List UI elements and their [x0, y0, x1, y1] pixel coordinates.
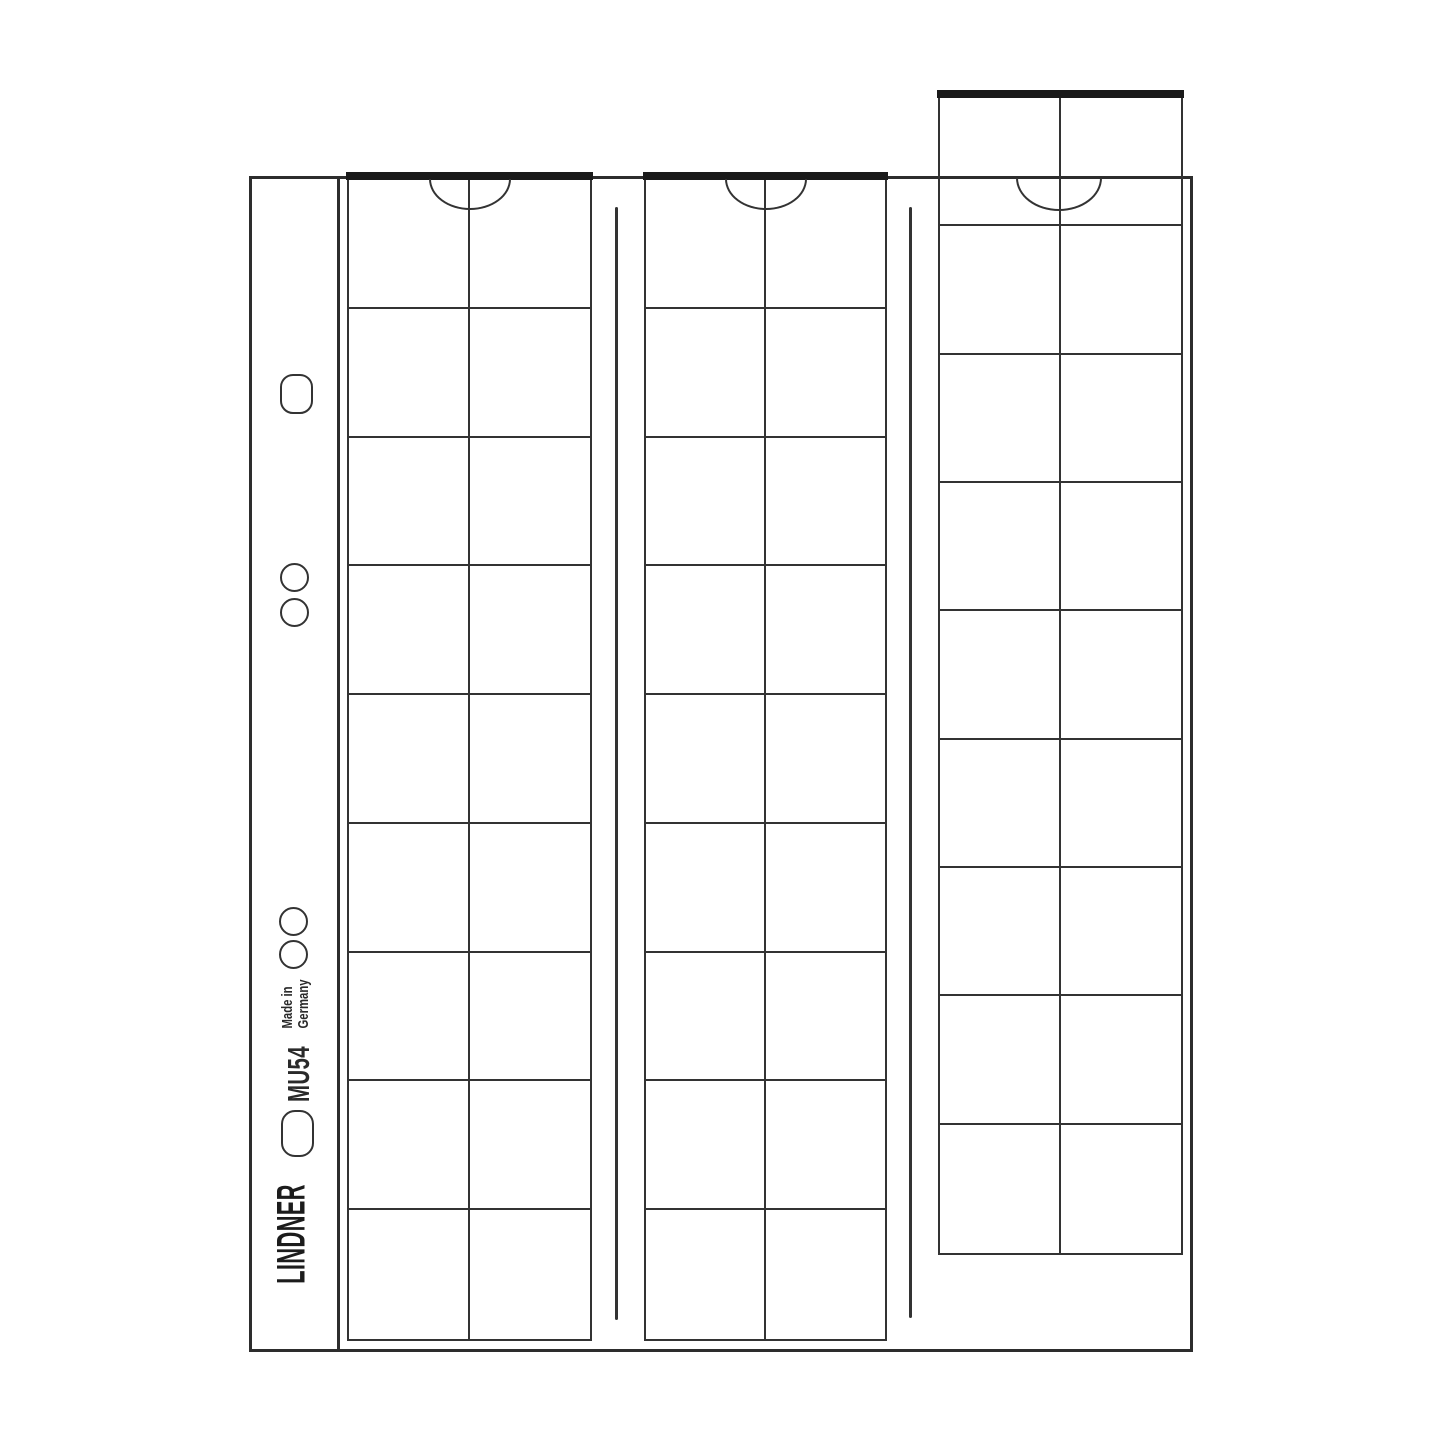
- coin-pocket: [349, 695, 470, 824]
- coin-strip: [938, 90, 1183, 1255]
- origin-text: Made in Germany: [280, 979, 312, 1028]
- coin-pocket: [940, 355, 1061, 483]
- coin-pocket: [766, 438, 886, 567]
- punch-hole-circle: [279, 907, 308, 936]
- coin-pocket: [766, 1081, 886, 1210]
- coin-pocket: [940, 226, 1061, 354]
- coin-pocket: [1061, 868, 1182, 996]
- coin-pocket: [470, 824, 591, 953]
- coin-pocket: [766, 695, 886, 824]
- punch-hole-circle: [280, 563, 309, 592]
- coin-pocket: [940, 98, 1061, 226]
- coin-pocket: [470, 1210, 591, 1339]
- coin-pocket: [646, 824, 766, 953]
- coin-pocket: [349, 824, 470, 953]
- coin-pocket: [940, 611, 1061, 739]
- coin-pocket: [349, 953, 470, 1082]
- pocket-grid: [644, 180, 887, 1341]
- coin-strip: [347, 172, 592, 1341]
- punch-hole-circle: [279, 940, 308, 969]
- coin-pocket: [646, 695, 766, 824]
- coin-pocket: [646, 566, 766, 695]
- coin-pocket: [349, 438, 470, 567]
- coin-pocket: [470, 953, 591, 1082]
- origin-line-1: Made in: [280, 979, 296, 1028]
- coin-strip: [644, 172, 887, 1341]
- coin-pocket: [349, 566, 470, 695]
- coin-pocket: [646, 1210, 766, 1339]
- coin-pocket: [470, 566, 591, 695]
- coin-pocket: [470, 1081, 591, 1210]
- product-illustration: LINDNER MU54 Made in Germany: [0, 0, 1445, 1445]
- coin-pocket: [1061, 996, 1182, 1124]
- coin-pocket: [470, 695, 591, 824]
- coin-pocket: [940, 1125, 1061, 1253]
- coin-pocket: [940, 740, 1061, 868]
- coin-pocket: [1061, 355, 1182, 483]
- pocket-grid: [347, 180, 592, 1341]
- coin-pocket: [1061, 98, 1182, 226]
- model-number-text: MU54: [281, 1046, 317, 1102]
- coin-pocket: [766, 953, 886, 1082]
- coin-pocket: [470, 438, 591, 567]
- coin-pocket: [1061, 740, 1182, 868]
- coin-pocket: [349, 309, 470, 438]
- coin-pocket: [470, 309, 591, 438]
- coin-pocket: [1061, 1125, 1182, 1253]
- coin-pocket: [940, 996, 1061, 1124]
- punch-hole-oblong: [281, 1110, 314, 1157]
- brand-logo-text: LINDNER: [270, 1184, 315, 1284]
- coin-pocket: [646, 1081, 766, 1210]
- strip-top-bar: [937, 90, 1184, 98]
- coin-pocket: [646, 438, 766, 567]
- coin-pocket: [766, 824, 886, 953]
- seam-line: [909, 207, 912, 1318]
- binder-margin-divider: [337, 176, 340, 1352]
- coin-pocket: [1061, 611, 1182, 739]
- pocket-grid: [938, 98, 1183, 1255]
- seam-line: [615, 207, 618, 1320]
- coin-pocket: [646, 953, 766, 1082]
- coin-pocket: [766, 566, 886, 695]
- origin-line-2: Germany: [296, 979, 312, 1028]
- coin-pocket: [940, 483, 1061, 611]
- coin-pocket: [766, 1210, 886, 1339]
- punch-hole-circle: [280, 598, 309, 627]
- coin-pocket: [646, 309, 766, 438]
- punch-hole-oblong: [280, 374, 313, 414]
- coin-pocket: [349, 1081, 470, 1210]
- coin-pocket: [940, 868, 1061, 996]
- coin-pocket: [349, 1210, 470, 1339]
- coin-pocket: [1061, 483, 1182, 611]
- coin-pocket: [1061, 226, 1182, 354]
- coin-pocket: [766, 309, 886, 438]
